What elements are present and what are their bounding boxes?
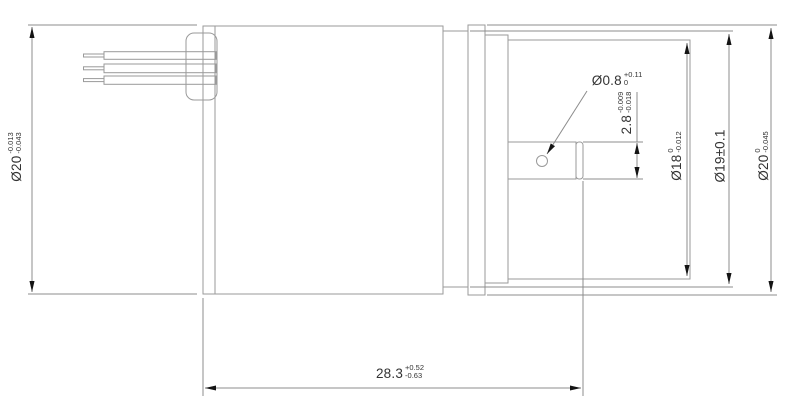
lead-wire-1 [104,52,216,60]
technical-drawing-canvas: Ø20 -0.013 -0.043 Ø0.8 +0.11 0 2.8 -0.00… [0,0,800,415]
terminal-block-outline [186,33,217,100]
gearhead-faceplate-outline [485,35,508,283]
mounting-ring-outline [468,25,485,295]
lead-wire-2 [104,64,216,73]
drawing-svg [0,0,800,415]
shaft-end-chamfer [576,142,583,179]
shaft-cross-hole [537,156,548,167]
lead-pin-1 [84,54,105,57]
gearhead-housing-outline [508,40,690,279]
lead-pin-2 [84,67,105,70]
motor-body-outline [203,26,443,294]
leader-hole [547,91,587,154]
gearhead-collar-outline [443,31,468,287]
lead-pin-3 [84,79,105,82]
lead-wire-3 [104,76,216,84]
